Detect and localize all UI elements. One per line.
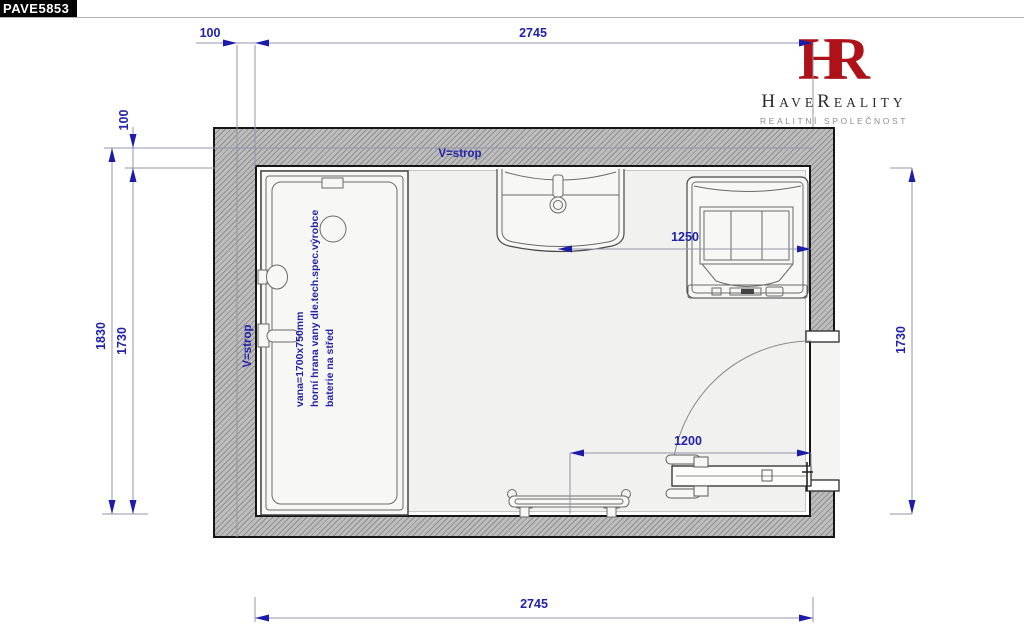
bathtub-note: vana=1700x750mm horní hrana vany dle.tec… bbox=[293, 210, 338, 407]
dim-bottom-width: 2745 bbox=[501, 597, 567, 611]
dim-left-offset: 100 bbox=[117, 80, 131, 160]
top-divider-line bbox=[0, 17, 1024, 18]
bathtub-note-line3: baterie na střed bbox=[323, 210, 338, 407]
dim-top-width: 2745 bbox=[500, 26, 566, 40]
floor-plan-page: PAVE5853 HR HAVEREALITY REALITNÍ SPOLEČN… bbox=[0, 0, 1024, 636]
logo-subtitle: REALITNÍ SPOLEČNOST bbox=[714, 116, 954, 126]
ceiling-label-top: V=strop bbox=[430, 148, 490, 160]
logo-hr-monogram-icon: HR bbox=[714, 28, 954, 90]
dim-radiator-to-wall: 1200 bbox=[655, 434, 721, 448]
bathtub-note-line2: horní hrana vany dle.tech.spec.výrobce bbox=[308, 210, 323, 407]
listing-code-badge: PAVE5853 bbox=[0, 0, 77, 18]
room-floor bbox=[255, 165, 811, 517]
door-opening bbox=[807, 342, 840, 481]
dim-top-offset: 100 bbox=[190, 26, 230, 40]
dim-sink-to-wall: 1250 bbox=[652, 230, 718, 244]
dim-left-inner: 1730 bbox=[115, 301, 129, 381]
ceiling-label-left: V=strop bbox=[242, 316, 254, 376]
dim-left-total: 1830 bbox=[94, 296, 108, 376]
bathtub-note-line1: vana=1700x750mm bbox=[293, 210, 308, 407]
haverreality-logo: HR HAVEREALITY REALITNÍ SPOLEČNOST bbox=[714, 28, 954, 126]
logo-brand-name: HAVEREALITY bbox=[714, 91, 954, 113]
dim-right-inner: 1730 bbox=[894, 300, 908, 380]
